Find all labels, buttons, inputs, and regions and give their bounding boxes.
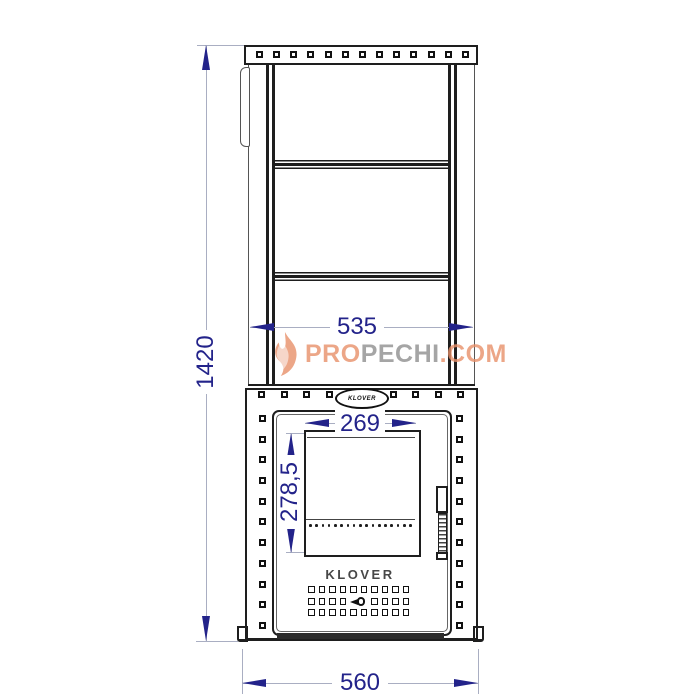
hole-square <box>403 598 410 605</box>
dim-269-arrow-left <box>305 419 329 427</box>
hole-square <box>259 581 266 588</box>
door-handle-bottom <box>436 552 448 560</box>
hole-square <box>390 391 397 398</box>
hole-square <box>456 498 463 505</box>
vent-row-bottom <box>308 609 409 616</box>
vent-row-middle <box>308 598 409 606</box>
hole-square <box>325 51 332 58</box>
hole-square <box>308 609 315 616</box>
air-dot <box>359 524 362 527</box>
hole-square <box>308 598 315 605</box>
hole-square <box>371 609 378 616</box>
hole-square <box>259 560 266 567</box>
cage-shelf-lower <box>275 272 448 281</box>
oval-badge: KLOVER <box>335 388 389 409</box>
hole-square <box>456 622 463 629</box>
hole-square <box>256 51 263 58</box>
hole-square <box>281 391 288 398</box>
cage-side-tab <box>240 67 250 147</box>
hole-square <box>403 586 410 593</box>
glass-air-dots <box>309 524 412 527</box>
hole-square <box>456 539 463 546</box>
dim-560-label: 560 <box>332 669 388 697</box>
brand-label: KLOVER <box>300 567 420 582</box>
hole-square <box>456 518 463 525</box>
dim-535-arrow-right <box>449 323 473 331</box>
air-dot <box>384 524 387 527</box>
hole-square <box>259 415 266 422</box>
hole-square <box>428 51 435 58</box>
glass-bottom-line <box>306 519 415 520</box>
air-dot <box>390 524 393 527</box>
hole-square <box>329 609 336 616</box>
hole-square <box>290 51 297 58</box>
air-dot <box>403 524 406 527</box>
dim-269-arrow-right <box>392 419 416 427</box>
dim-560-arrow-left <box>242 679 266 687</box>
hole-square <box>412 391 419 398</box>
hole-square <box>359 51 366 58</box>
hole-square <box>382 609 389 616</box>
hole-square <box>435 391 442 398</box>
hole-square <box>259 601 266 608</box>
dim-2785-label: 278,5 <box>277 455 303 529</box>
hole-square <box>410 51 417 58</box>
hole-square <box>445 51 452 58</box>
hole-square <box>326 391 333 398</box>
cage-shelf-upper <box>275 160 448 169</box>
hole-square <box>319 609 326 616</box>
hole-square <box>382 586 389 593</box>
air-dot <box>372 524 375 527</box>
hole-square <box>371 586 378 593</box>
hole-square <box>319 586 326 593</box>
air-dot <box>322 524 325 527</box>
ground-line <box>239 639 482 641</box>
hole-square <box>340 586 347 593</box>
keyhole-icon <box>350 598 368 606</box>
hole-square <box>456 477 463 484</box>
air-dot <box>340 524 343 527</box>
flame-icon <box>268 331 304 377</box>
hole-square <box>303 391 310 398</box>
hole-square <box>382 598 389 605</box>
firebox-top-holes-left <box>258 391 333 398</box>
cage-right-post-inner <box>448 64 451 385</box>
hole-square <box>376 51 383 58</box>
cage-base-line <box>248 384 475 386</box>
air-dot <box>378 524 381 527</box>
door-glass <box>304 430 421 557</box>
vent-mid-right <box>371 598 409 605</box>
cage-right-edge <box>474 64 475 386</box>
glass-top-line <box>307 437 415 438</box>
hole-square <box>273 51 280 58</box>
firebox-top-holes-right <box>390 391 464 398</box>
watermark: PROPECHI.COM <box>268 330 448 378</box>
air-dot <box>409 524 412 527</box>
hole-square <box>456 581 463 588</box>
firebox-left-holes <box>259 415 266 629</box>
hole-square <box>350 586 357 593</box>
watermark-pro: PRO <box>305 340 361 368</box>
hole-square <box>456 560 463 567</box>
hole-square <box>307 51 314 58</box>
dim-269-label: 269 <box>335 410 385 437</box>
hole-square <box>456 601 463 608</box>
hole-square <box>456 415 463 422</box>
hole-square <box>259 622 266 629</box>
hole-square <box>350 609 357 616</box>
dim-1420-label: 1420 <box>191 330 221 394</box>
hole-square <box>392 586 399 593</box>
air-dot <box>365 524 368 527</box>
watermark-pechi: PECHI <box>361 340 440 368</box>
hole-square <box>392 609 399 616</box>
air-dot <box>309 524 312 527</box>
door-handle-rod <box>438 513 447 553</box>
air-dot <box>347 524 350 527</box>
hole-square <box>361 609 368 616</box>
hole-square <box>329 586 336 593</box>
air-dot <box>397 524 400 527</box>
hole-square <box>371 598 378 605</box>
hole-square <box>361 586 368 593</box>
stove-technical-drawing: KLOVER KLOVER 1420 535 <box>0 0 700 700</box>
hole-square <box>259 498 266 505</box>
vent-mid-left <box>308 598 346 605</box>
watermark-text: PROPECHI.COM <box>305 342 507 367</box>
air-dot <box>328 524 331 527</box>
watermark-com: .COM <box>440 340 507 368</box>
cage-right-post <box>454 64 457 385</box>
hole-square <box>319 598 326 605</box>
firebox-right-holes <box>456 415 463 629</box>
cage-top-cap-holes <box>256 51 469 58</box>
hole-square <box>392 598 399 605</box>
hole-square <box>457 391 464 398</box>
hole-square <box>308 586 315 593</box>
hole-square <box>403 609 410 616</box>
hole-square <box>259 477 266 484</box>
dim-1420-arrow-down <box>202 616 210 641</box>
oval-badge-text: KLOVER <box>348 396 376 402</box>
dim-1420-arrow-up <box>202 45 210 70</box>
dim-2785-arrow-down <box>287 528 295 553</box>
hole-square <box>393 51 400 58</box>
dim-560-arrow-right <box>454 679 478 687</box>
air-dot <box>353 524 356 527</box>
hole-square <box>259 518 266 525</box>
hole-square <box>259 436 266 443</box>
hole-square <box>456 456 463 463</box>
vent-row-top <box>308 586 409 593</box>
hole-square <box>259 456 266 463</box>
hole-square <box>329 598 336 605</box>
air-dot <box>315 524 318 527</box>
hole-square <box>258 391 265 398</box>
hole-square <box>340 609 347 616</box>
hole-square <box>462 51 469 58</box>
hole-square <box>342 51 349 58</box>
air-dot <box>334 524 337 527</box>
dim-560-ext-left <box>242 649 243 694</box>
door-handle-top <box>436 486 448 513</box>
dim-560-ext-right <box>478 649 479 694</box>
hole-square <box>340 598 347 605</box>
hole-square <box>456 436 463 443</box>
hole-square <box>259 539 266 546</box>
